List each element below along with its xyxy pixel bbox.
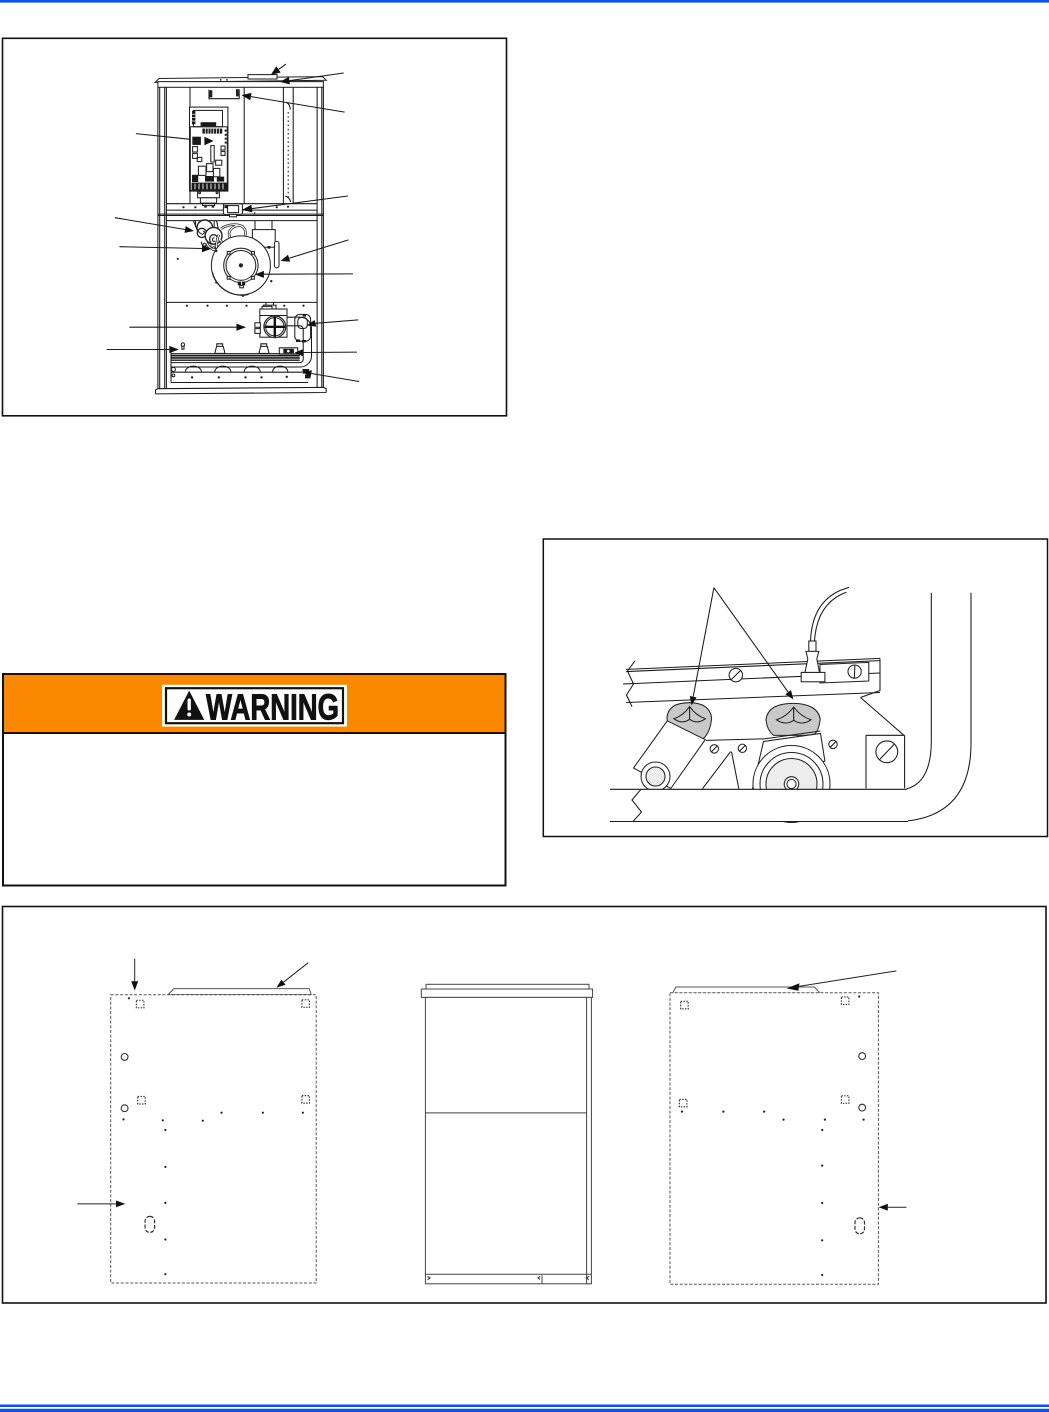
svg-text:WARNING: WARNING: [206, 687, 339, 728]
